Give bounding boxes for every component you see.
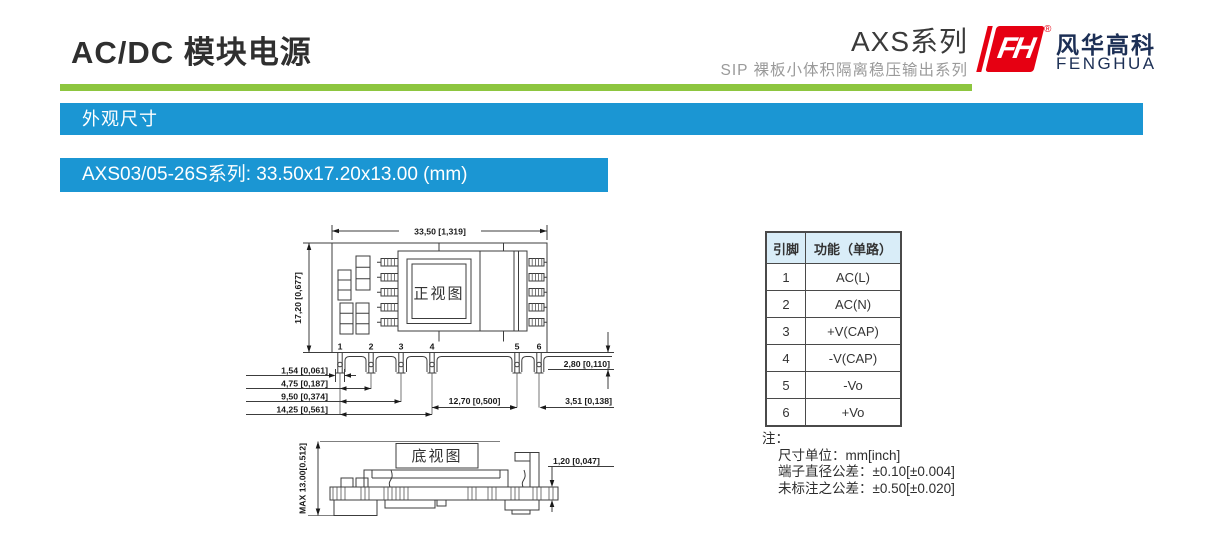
section-banner: 外观尺寸 bbox=[60, 103, 1143, 135]
pin-number-5: 5 bbox=[515, 342, 520, 352]
pin-number-1: 1 bbox=[338, 342, 343, 352]
table-row: 2 AC(N) bbox=[766, 291, 901, 318]
table-row: 3 +V(CAP) bbox=[766, 318, 901, 345]
pin-cell: 5 bbox=[766, 372, 806, 399]
note-line: 未标注之公差：±0.50[±0.020] bbox=[778, 481, 955, 498]
func-cell: +V(CAP) bbox=[806, 318, 902, 345]
component-ic-column-right bbox=[529, 259, 547, 327]
green-divider bbox=[60, 84, 972, 91]
pin-cell: 1 bbox=[766, 264, 806, 291]
fenghua-logo-icon: FH ® bbox=[982, 26, 1044, 72]
pin-number-4: 4 bbox=[430, 342, 435, 352]
fenghua-logo: FH ® 风华高科 FENGHUA bbox=[982, 20, 1162, 80]
dim-height-label: 17,20 [0,677] bbox=[293, 272, 303, 324]
model-banner: AXS03/05-26S系列: 33.50x17.20x13.00 (mm) bbox=[60, 158, 608, 192]
notes: 注： 尺寸单位：mm[inch] 端子直径公差：±0.10[±0.004] 未标… bbox=[762, 431, 955, 497]
dim-pitch1-label: 4,75 [0,187] bbox=[281, 379, 328, 389]
page-title: AC/DC 模块电源 bbox=[71, 27, 312, 72]
series-title: AXS系列 bbox=[851, 20, 968, 60]
func-cell: -V(CAP) bbox=[806, 345, 902, 372]
bottom-view-label: 底视图 bbox=[411, 448, 462, 465]
pin-cell: 2 bbox=[766, 291, 806, 318]
note-line: 尺寸单位：mm[inch] bbox=[778, 448, 955, 465]
logo-fh-monogram: FH bbox=[995, 32, 1035, 66]
pin-table: 引脚 功能（单路） 1 AC(L) 2 AC(N) 3 +V(CAP) 4 -V… bbox=[765, 231, 902, 427]
dim-pin-offset-label: 1,54 [0,061] bbox=[281, 366, 328, 376]
pin-number-2: 2 bbox=[369, 342, 374, 352]
front-view-label: 正视图 bbox=[413, 286, 464, 303]
bottom-view-drawing: MAX 13.00[0.512] 底视图 1,20 [0,047] bbox=[295, 430, 620, 525]
pin-column-header: 引脚 bbox=[766, 232, 806, 264]
note-title: 注： bbox=[762, 431, 955, 448]
dim-gap45-label: 12,70 [0,500] bbox=[449, 396, 501, 406]
pin-number-6: 6 bbox=[537, 342, 542, 352]
pin-cell: 3 bbox=[766, 318, 806, 345]
func-cell: AC(L) bbox=[806, 264, 902, 291]
dim-max-height-label: MAX 13.00[0.512] bbox=[298, 443, 308, 514]
dim-board-thickness-label: 1,20 [0,047] bbox=[553, 456, 600, 466]
pcb-bar bbox=[330, 487, 558, 500]
component-right-block bbox=[480, 243, 527, 342]
func-cell: -Vo bbox=[806, 372, 902, 399]
datasheet-page: AC/DC 模块电源 AXS系列 SIP 裸板小体积隔离稳压输出系列 FH ® … bbox=[0, 0, 1210, 550]
dim-pin-length-label: 2,80 [0,110] bbox=[564, 359, 610, 369]
logo-company-en: FENGHUA bbox=[1056, 54, 1157, 74]
table-row: 6 +Vo bbox=[766, 399, 901, 427]
logo-block-shape: FH bbox=[985, 26, 1044, 72]
dim-pitch3-label: 14,25 [0,561] bbox=[276, 405, 328, 415]
table-row: 5 -Vo bbox=[766, 372, 901, 399]
series-subtitle: SIP 裸板小体积隔离稳压输出系列 bbox=[720, 58, 968, 80]
registered-mark: ® bbox=[1044, 24, 1051, 35]
dim-width-label: 33,50 [1,319] bbox=[414, 227, 466, 237]
func-cell: +Vo bbox=[806, 399, 902, 427]
pin-cell: 6 bbox=[766, 399, 806, 427]
table-row: 4 -V(CAP) bbox=[766, 345, 901, 372]
front-view-drawing: 33,50 [1,319] 17,20 [0,677] bbox=[240, 205, 620, 420]
component-capacitors bbox=[338, 256, 370, 334]
func-column-header: 功能（单路） bbox=[806, 232, 902, 264]
pin-table-header-row: 引脚 功能（单路） bbox=[766, 232, 901, 264]
note-line: 端子直径公差：±0.10[±0.004] bbox=[778, 464, 955, 481]
dim-pitch2-label: 9,50 [0,374] bbox=[281, 392, 328, 402]
pin-number-3: 3 bbox=[399, 342, 404, 352]
func-cell: AC(N) bbox=[806, 291, 902, 318]
table-row: 1 AC(L) bbox=[766, 264, 901, 291]
component-ic-column-left bbox=[377, 259, 398, 327]
dim-pitch56-label: 3,51 [0,138] bbox=[565, 396, 612, 406]
pin-cell: 4 bbox=[766, 345, 806, 372]
